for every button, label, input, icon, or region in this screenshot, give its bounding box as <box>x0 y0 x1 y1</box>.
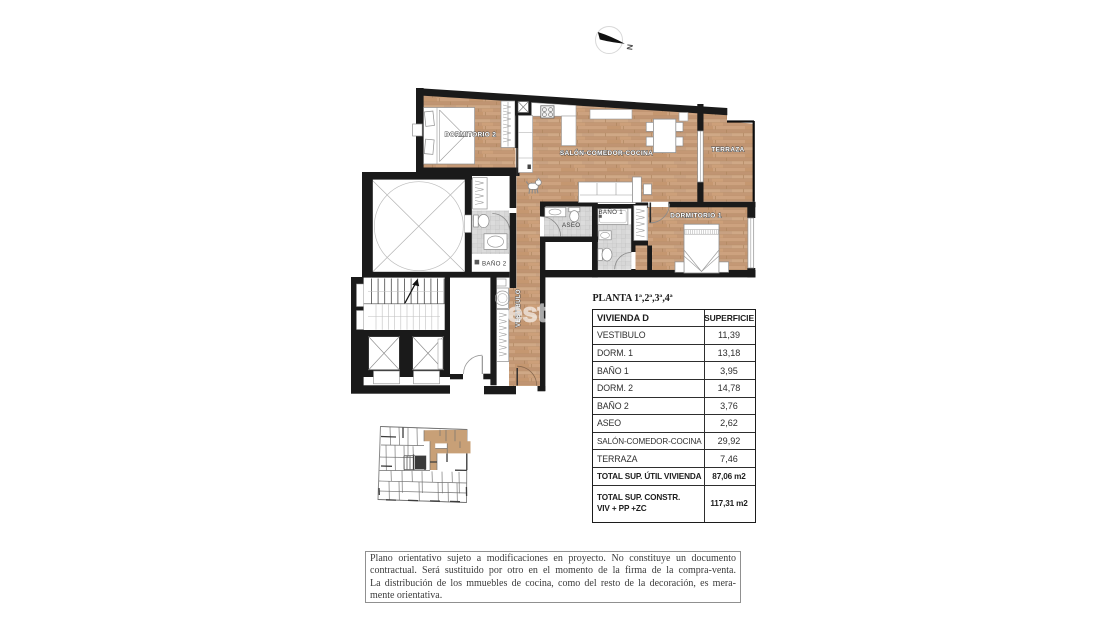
svg-text:SALÓN-COMEDOR-COCINA: SALÓN-COMEDOR-COCINA <box>560 148 653 157</box>
svg-text:DORMITORIO 2: DORMITORIO 2 <box>445 132 497 139</box>
svg-text:TERRAZA: TERRAZA <box>711 147 744 154</box>
svg-text:est: est <box>508 298 547 328</box>
svg-text:BAÑO 2: BAÑO 2 <box>482 261 507 268</box>
svg-text:BAÑO 1: BAÑO 1 <box>599 209 624 216</box>
svg-text:DORMITORIO 1: DORMITORIO 1 <box>670 213 722 220</box>
svg-text:ASEO: ASEO <box>562 222 580 229</box>
svg-text:N: N <box>625 44 635 51</box>
